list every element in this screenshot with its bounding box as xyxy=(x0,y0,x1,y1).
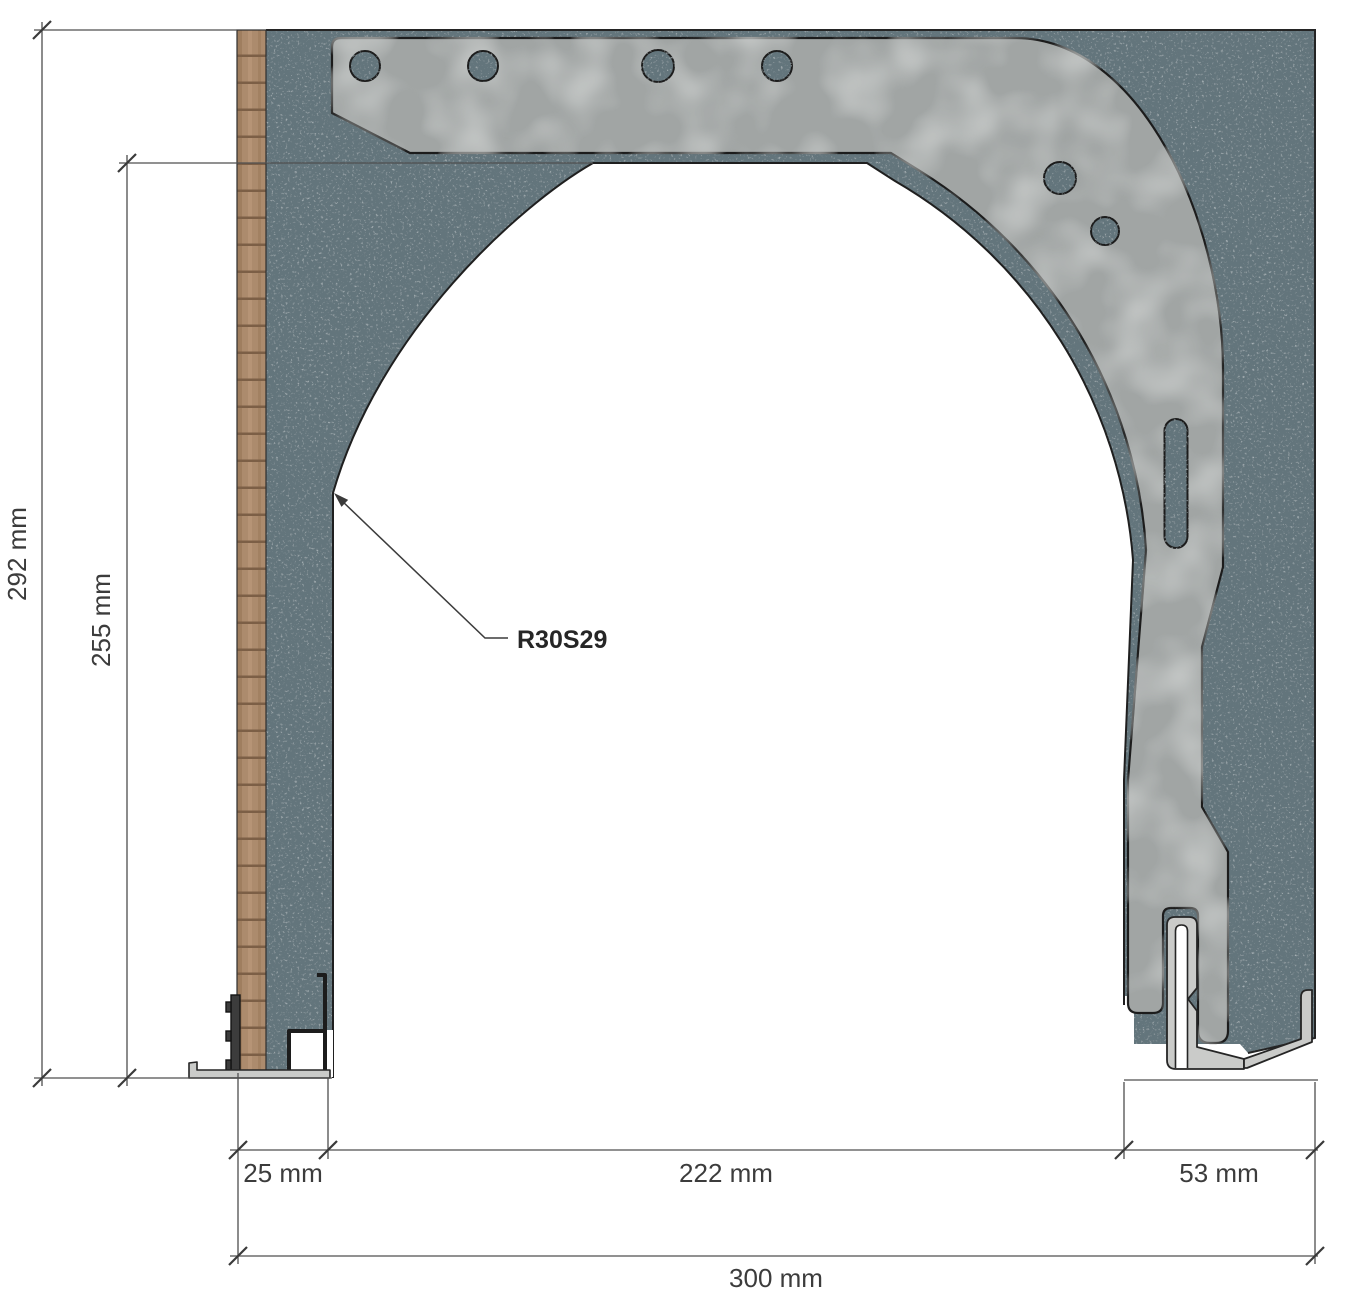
dim-lining-label: 25 mm xyxy=(243,1158,322,1188)
guide-rail-slot xyxy=(1176,925,1188,1068)
fixing-hole-3 xyxy=(642,50,674,82)
adjustment-slot xyxy=(1165,419,1188,548)
wood-strip xyxy=(237,30,266,1073)
fixing-hole-2 xyxy=(468,51,498,81)
fixing-hole-6 xyxy=(1091,217,1119,245)
dim-opening-width-label: 222 mm xyxy=(679,1158,773,1188)
dim-box-side-label: 53 mm xyxy=(1179,1158,1258,1188)
technical-drawing-page: 292 mm 255 mm 25 mm 222 mm 53 mm 300 mm … xyxy=(0,0,1345,1295)
profile-type-label: R30S29 xyxy=(517,626,607,654)
opening-fill xyxy=(333,163,1133,1078)
shutter-box-section-drawing: 292 mm 255 mm 25 mm 222 mm 53 mm 300 mm … xyxy=(0,0,1345,1295)
clip-strip xyxy=(226,995,240,1073)
fixing-hole-5 xyxy=(1044,162,1076,194)
dim-total-height-label: 292 mm xyxy=(2,507,32,601)
dim-total-width-label: 300 mm xyxy=(729,1263,823,1293)
dim-opening-height-label: 255 mm xyxy=(86,573,116,667)
wood-lining xyxy=(237,30,266,1073)
fixing-hole-1 xyxy=(350,51,380,81)
fixing-hole-4 xyxy=(762,51,792,81)
